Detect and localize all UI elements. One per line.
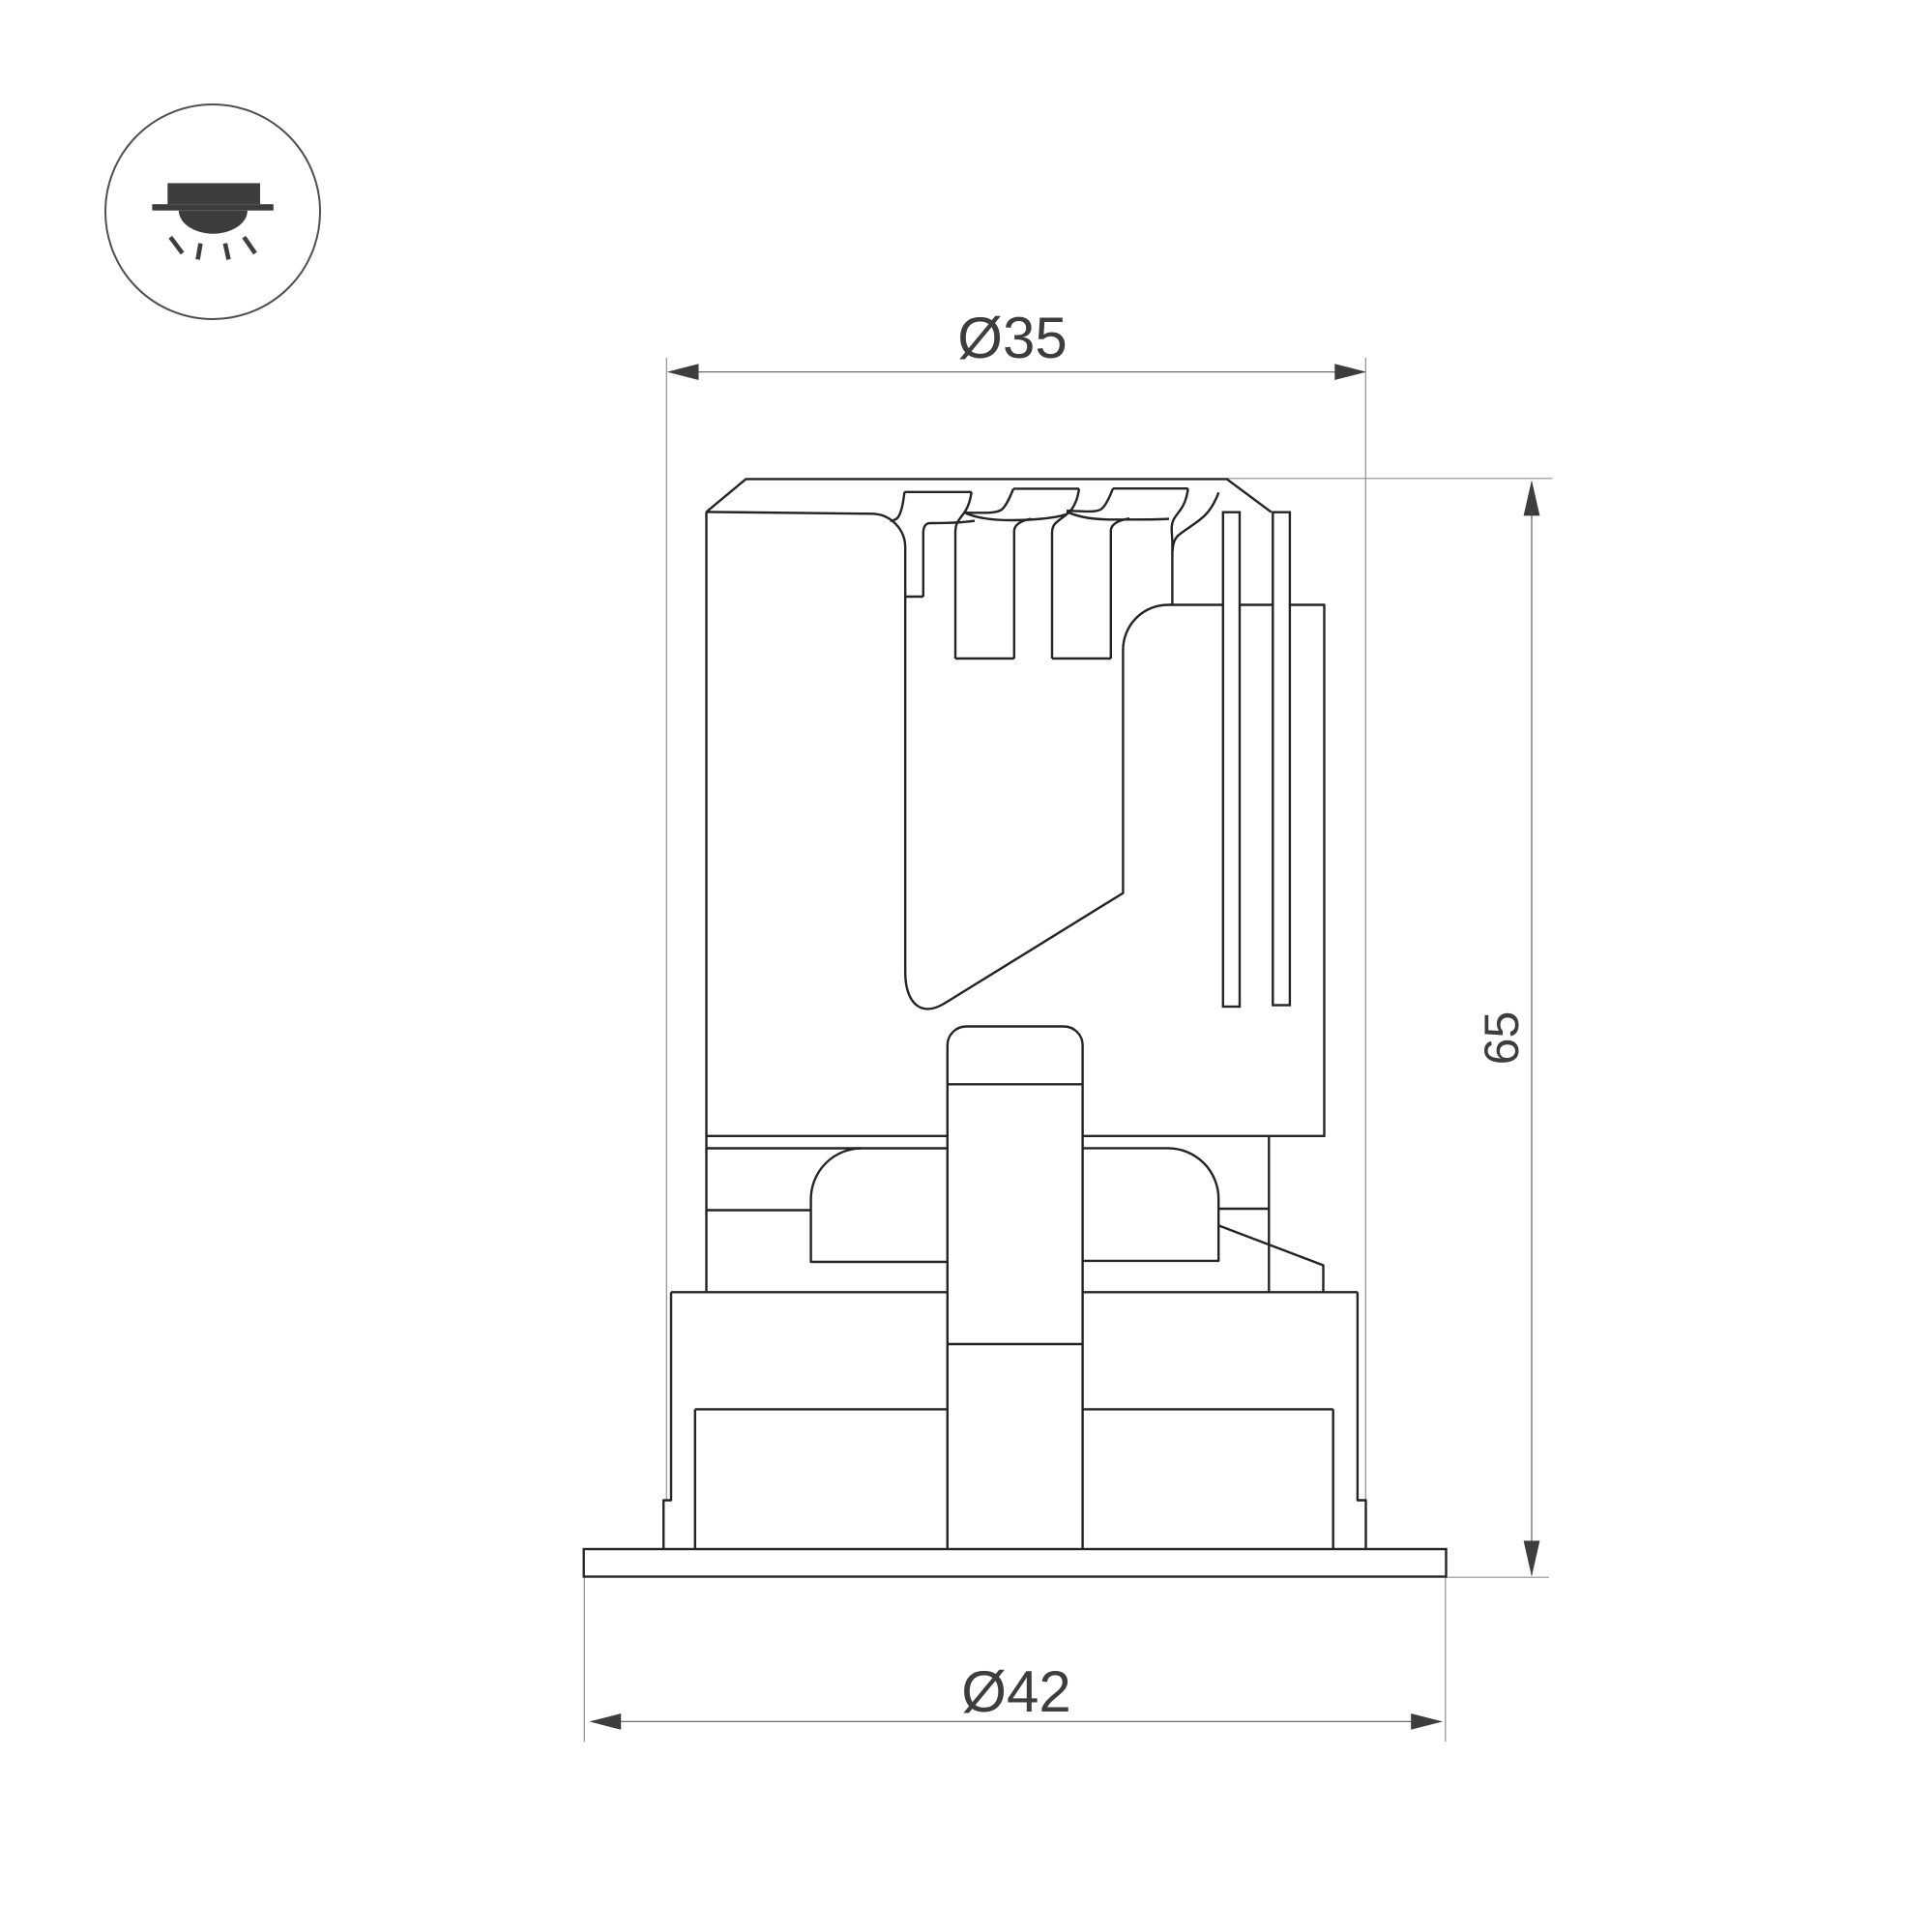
svg-text:Ø42: Ø42 <box>961 1659 1070 1724</box>
svg-text:65: 65 <box>1475 1011 1529 1066</box>
svg-text:Ø35: Ø35 <box>957 306 1067 370</box>
